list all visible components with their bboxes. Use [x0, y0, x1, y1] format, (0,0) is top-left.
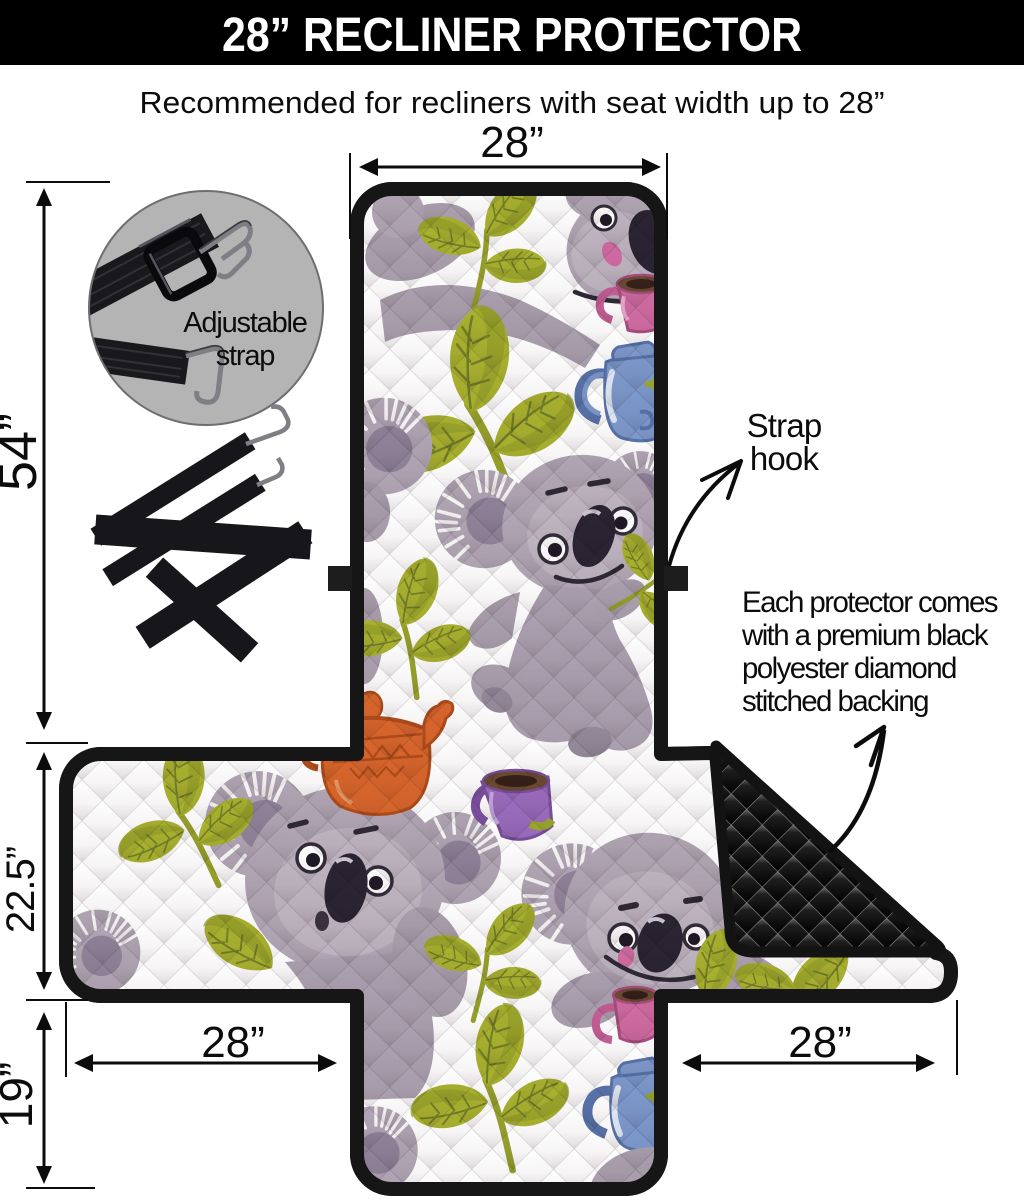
svg-text:22.5”: 22.5” — [0, 847, 43, 933]
svg-text:with a premium black: with a premium black — [741, 619, 989, 652]
svg-text:28”: 28” — [201, 1018, 265, 1067]
svg-text:Strap: Strap — [747, 407, 822, 444]
svg-text:strap: strap — [216, 340, 275, 372]
svg-text:19”: 19” — [0, 1062, 42, 1128]
svg-text:54”: 54” — [0, 413, 48, 491]
svg-text:hook: hook — [750, 440, 820, 477]
svg-text:28”: 28” — [788, 1018, 852, 1067]
svg-text:28” RECLINER PROTECTOR: 28” RECLINER PROTECTOR — [222, 9, 802, 62]
svg-text:stitched backing: stitched backing — [742, 685, 928, 718]
svg-text:28”: 28” — [480, 118, 544, 167]
svg-text:polyester diamond: polyester diamond — [742, 652, 956, 685]
svg-text:Adjustable: Adjustable — [183, 307, 306, 339]
svg-text:Each protector comes: Each protector comes — [742, 586, 998, 619]
svg-text:Recommended for recliners with: Recommended for recliners with seat widt… — [140, 85, 885, 120]
